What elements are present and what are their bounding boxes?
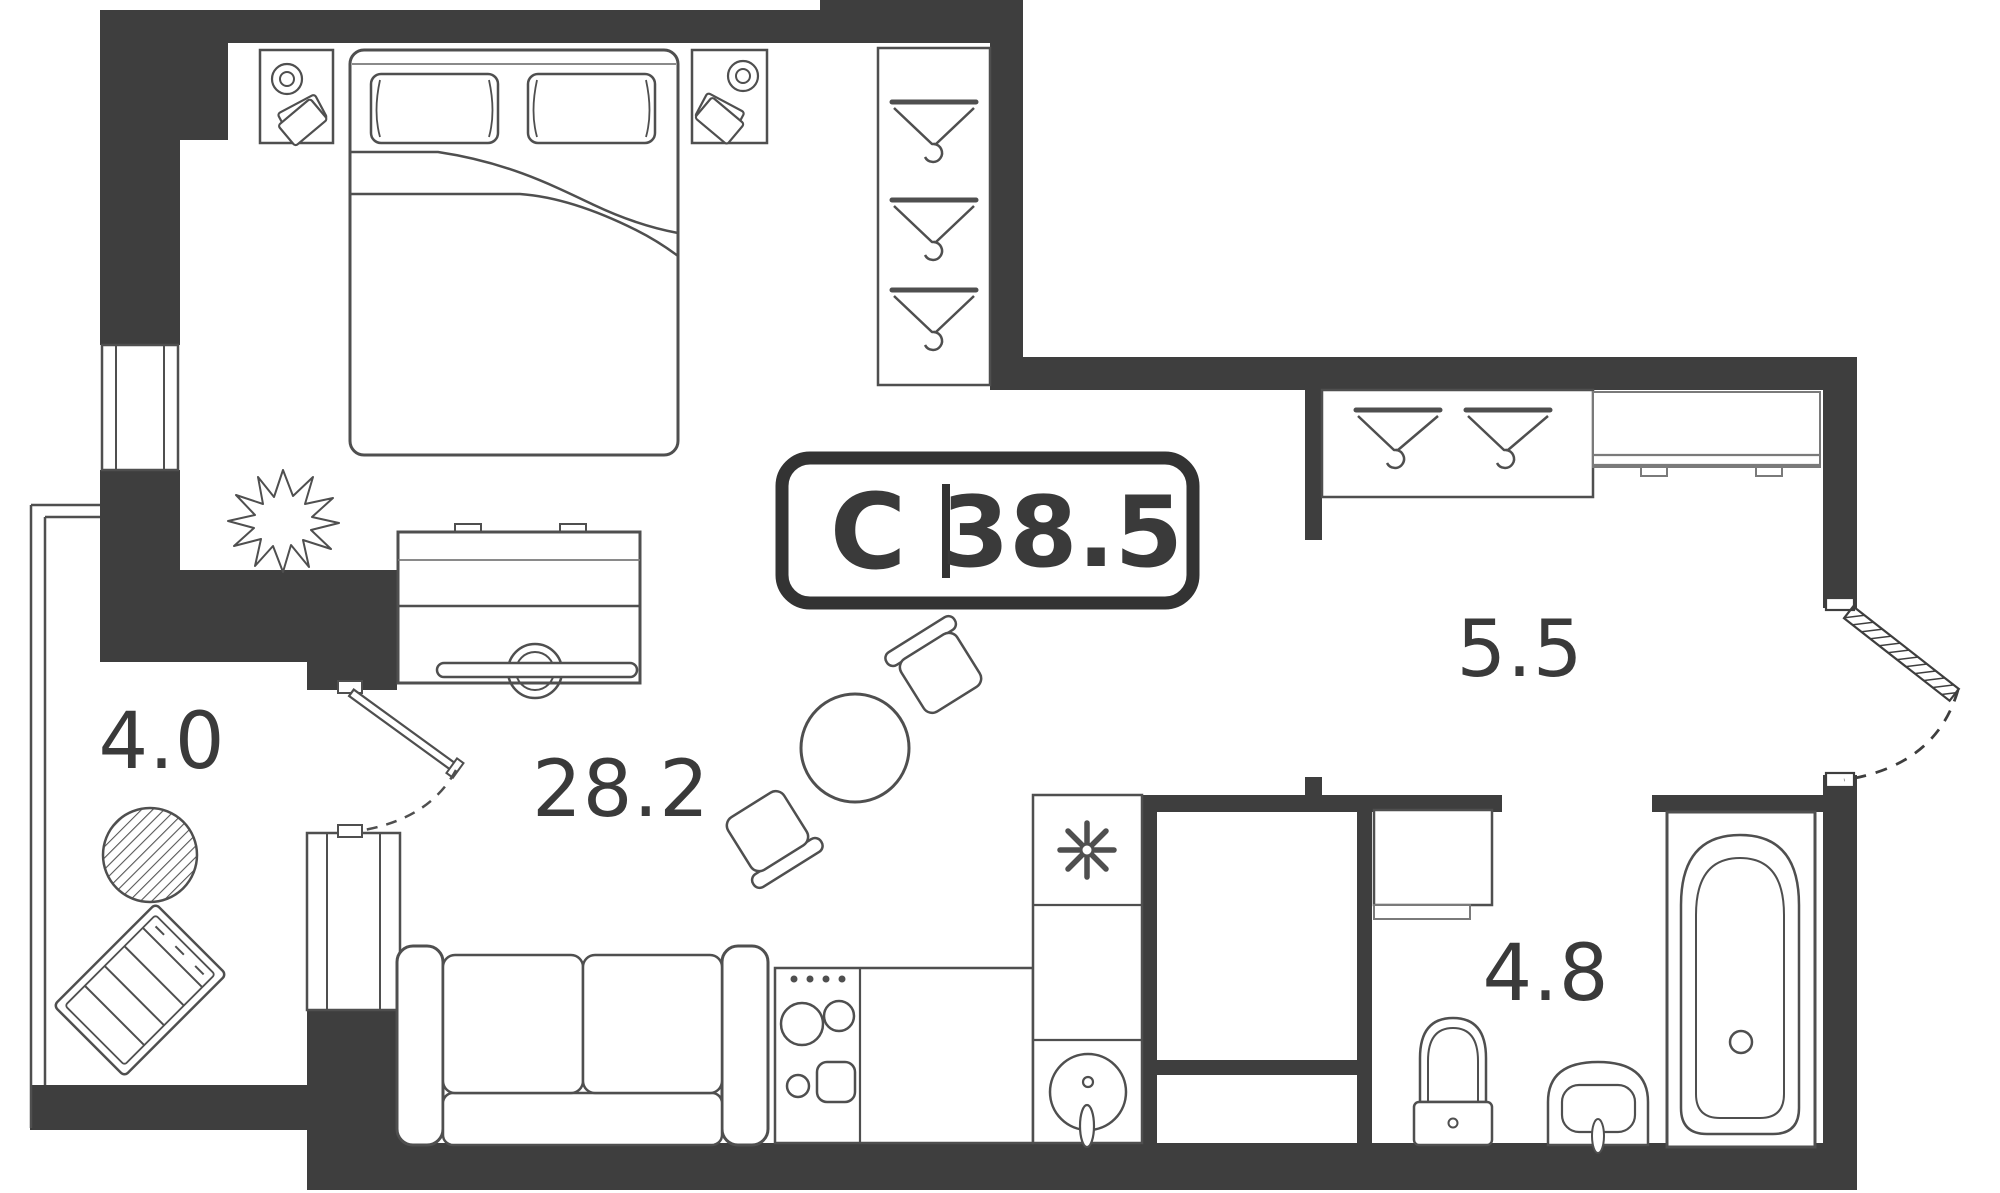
- dining-chair: [883, 613, 991, 720]
- wall-stub-hallway: [1305, 390, 1322, 540]
- sofa-armrest: [722, 946, 768, 1145]
- nightstand-left: [260, 50, 333, 149]
- sofa-cushion: [583, 955, 722, 1093]
- wall-bottom: [310, 1143, 1857, 1190]
- wall-partition-lower-block: [307, 1010, 405, 1190]
- lamp-icon: [736, 69, 750, 83]
- dining-chair: [717, 784, 825, 891]
- sofa: [397, 946, 768, 1145]
- wall-hallway-top: [1023, 357, 1857, 390]
- wall-right-upper: [1823, 390, 1857, 608]
- fridge-snowflake-icon: [1060, 823, 1114, 877]
- lamp-icon: [280, 72, 294, 86]
- balcony-pouf: [103, 808, 197, 902]
- entrance-door-leaf: [1844, 606, 1959, 700]
- badge-area-value: 38.5: [941, 476, 1183, 590]
- balcony-door-leaf: [346, 686, 463, 778]
- sofa-back: [443, 1093, 722, 1145]
- wall-closet-top: [1142, 795, 1372, 812]
- bathroom-sink: [1548, 1062, 1648, 1153]
- wall-bathroom-top-right: [1652, 795, 1823, 812]
- balcony-door: [338, 681, 463, 837]
- nightstand-right: [690, 50, 767, 147]
- entrance-door: [1826, 598, 1959, 787]
- wall-wardrobe-right: [990, 43, 1023, 390]
- faucet: [1080, 1105, 1094, 1147]
- faucet: [1592, 1119, 1604, 1153]
- wall-stub-lower: [1305, 777, 1322, 795]
- sofa-armrest: [397, 946, 443, 1145]
- bathroom-cabinet: [1374, 810, 1492, 919]
- bed: [350, 50, 678, 455]
- wall-corner-pier: [180, 10, 228, 140]
- wall-balcony-bottom: [30, 1085, 310, 1130]
- kitchen-counter: [775, 968, 1033, 1143]
- toilet: [1414, 1018, 1492, 1145]
- wall-bathroom-left: [1357, 795, 1372, 1143]
- entrance-door-jamb-bottom: [1826, 773, 1854, 787]
- balcony-partition-window: [307, 833, 400, 1010]
- wall-left-mid: [100, 470, 180, 570]
- badge-type-letter: С: [830, 471, 906, 593]
- bench-foot: [1756, 467, 1782, 476]
- living-area-label: 28.2: [532, 745, 710, 835]
- wall-top-raised-block: [820, 0, 1023, 43]
- pillow: [528, 74, 655, 143]
- balcony-door-jamb-top: [338, 681, 362, 693]
- wall-balcony-top-block: [100, 570, 397, 662]
- bathtub: [1667, 812, 1815, 1147]
- balcony-door-jamb-bottom: [338, 825, 362, 837]
- unit-badge: С 38.5: [782, 458, 1193, 603]
- balcony-door-swing-arc: [364, 770, 456, 830]
- sofa-cushion: [443, 955, 583, 1093]
- wall-kitchen-closet-left: [1142, 795, 1157, 1143]
- wall-closet-bottom-band: [1157, 1060, 1357, 1075]
- entrance-door-swing-arc: [1844, 690, 1958, 780]
- wardrobe: [878, 48, 990, 385]
- bathroom-area-label: 4.8: [1482, 929, 1609, 1019]
- plant-icon: [228, 470, 339, 572]
- pillow: [371, 74, 498, 143]
- shoe-bench: [1593, 392, 1820, 476]
- coat-rack: [1322, 390, 1593, 497]
- balcony-area-label: 4.0: [98, 697, 225, 787]
- bench-foot: [1641, 467, 1667, 476]
- entrance-door-jamb-top: [1826, 598, 1854, 610]
- floor-plan: 4.0 28.2 5.5 4.8 С 38.5: [0, 0, 2000, 1193]
- hallway-area-label: 5.5: [1456, 605, 1583, 695]
- kitchen-column: [1033, 795, 1142, 1147]
- wall-right-lower: [1823, 775, 1857, 1190]
- wall-left-upper: [100, 10, 180, 345]
- bedroom-window: [102, 345, 178, 470]
- lounge-chair: [54, 904, 227, 1077]
- floor-plan-svg: 4.0 28.2 5.5 4.8 С 38.5: [0, 0, 2000, 1193]
- dining-table: [801, 694, 909, 802]
